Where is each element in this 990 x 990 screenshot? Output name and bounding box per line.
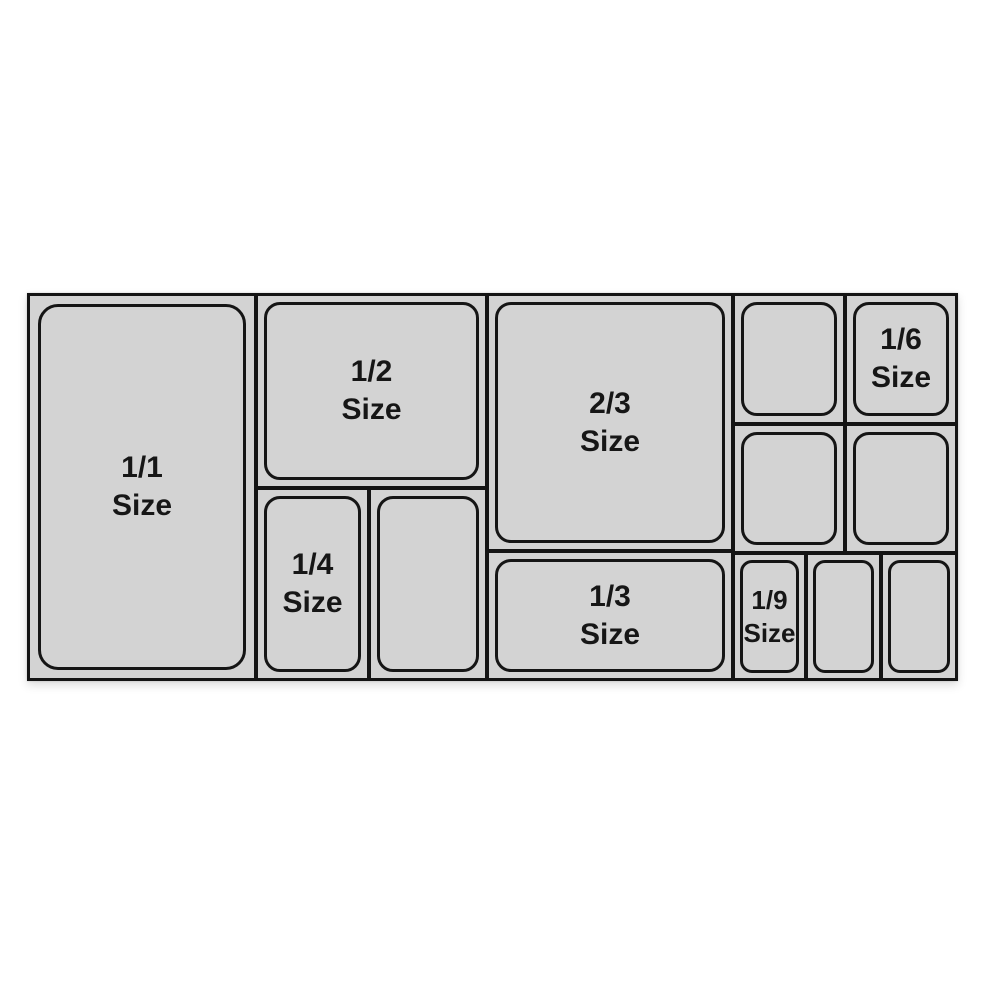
pan-1-6-label: 1/6 Size <box>871 321 931 397</box>
pan-1-6-unlabeled-b-outline <box>741 432 837 545</box>
pan-size-diagram: 1/1 Size 1/2 Size 1/4 Size <box>27 293 958 681</box>
pan-1-1-size-word: Size <box>112 487 172 525</box>
pan-1-9-fraction: 1/9 <box>751 584 787 617</box>
pan-1-9-size-word: Size <box>743 617 795 650</box>
page-background: 1/1 Size 1/2 Size 1/4 Size <box>0 0 990 990</box>
pan-1-3-size-word: Size <box>580 616 640 654</box>
pan-1-6-unlabeled-a <box>735 296 843 422</box>
pan-1-3-fraction: 1/3 <box>589 578 631 616</box>
pan-1-9-label: 1/9 Size <box>743 584 795 650</box>
pan-1-1-fraction: 1/1 <box>121 449 163 487</box>
pan-1-2-size-word: Size <box>341 391 401 429</box>
pan-1-2: 1/2 Size <box>258 296 485 486</box>
pan-1-4-size-word: Size <box>282 584 342 622</box>
pan-1-4-label: 1/4 Size <box>282 546 342 622</box>
pan-1-6-unlabeled-c-outline <box>853 432 949 545</box>
pan-1-6: 1/6 Size <box>847 296 955 422</box>
pan-1-4-unlabeled-outline <box>377 496 479 672</box>
pan-1-6-unlabeled-c <box>847 426 955 551</box>
pan-1-6-size-word: Size <box>871 359 931 397</box>
pan-1-1: 1/1 Size <box>30 296 254 678</box>
pan-1-4-outline: 1/4 Size <box>264 496 361 672</box>
pan-1-2-label: 1/2 Size <box>341 353 401 429</box>
pan-1-9-unlabeled-b-outline <box>888 560 950 673</box>
pan-1-9: 1/9 Size <box>735 555 804 678</box>
pan-1-4: 1/4 Size <box>258 490 367 678</box>
pan-1-4-fraction: 1/4 <box>292 546 334 584</box>
pan-1-3-outline: 1/3 Size <box>495 559 725 672</box>
pan-2-3-size-word: Size <box>580 423 640 461</box>
pan-1-9-unlabeled-a-outline <box>813 560 874 673</box>
pan-2-3-label: 2/3 Size <box>580 385 640 461</box>
pan-1-3: 1/3 Size <box>489 553 731 678</box>
pan-1-3-label: 1/3 Size <box>580 578 640 654</box>
pan-2-3-outline: 2/3 Size <box>495 302 725 543</box>
pan-1-6-outline: 1/6 Size <box>853 302 949 416</box>
pan-1-1-label: 1/1 Size <box>112 449 172 525</box>
pan-1-6-unlabeled-b <box>735 426 843 551</box>
pan-1-6-fraction: 1/6 <box>880 321 922 359</box>
pan-2-3: 2/3 Size <box>489 296 731 549</box>
pan-1-1-outline: 1/1 Size <box>38 304 246 670</box>
pan-1-9-outline: 1/9 Size <box>740 560 799 673</box>
pan-1-6-unlabeled-a-outline <box>741 302 837 416</box>
pan-1-4-unlabeled <box>371 490 485 678</box>
pan-2-3-fraction: 2/3 <box>589 385 631 423</box>
pan-1-2-outline: 1/2 Size <box>264 302 479 480</box>
pan-1-9-unlabeled-a <box>808 555 879 678</box>
pan-1-2-fraction: 1/2 <box>351 353 393 391</box>
pan-1-9-unlabeled-b <box>883 555 955 678</box>
